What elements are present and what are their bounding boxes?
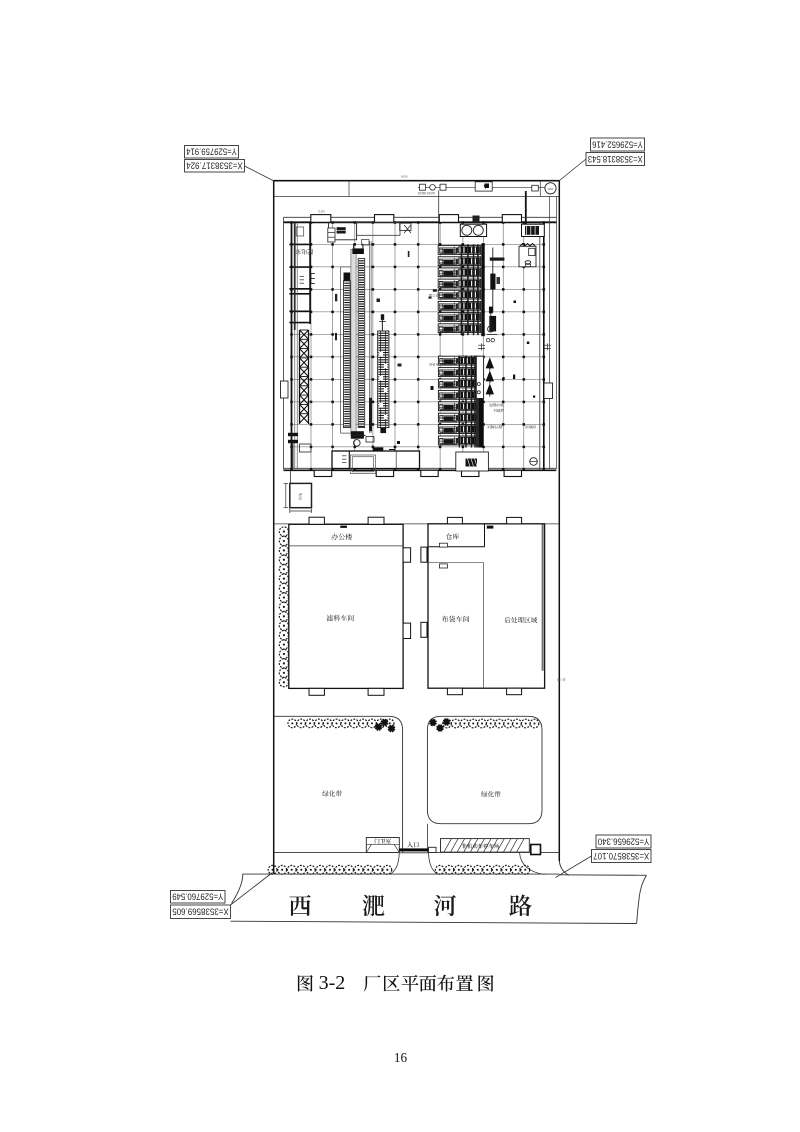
svg-text:X=3538317.924: X=3538317.924 bbox=[186, 161, 243, 171]
svg-text:Y=529656.340: Y=529656.340 bbox=[598, 836, 650, 846]
svg-text:Y=529759.914: Y=529759.914 bbox=[186, 147, 237, 157]
svg-text:X=3538318.543: X=3538318.543 bbox=[588, 154, 643, 164]
svg-text:DN50 DN70: DN50 DN70 bbox=[418, 192, 435, 196]
svg-text:16: 16 bbox=[394, 1050, 408, 1065]
svg-text:X=3538569.605: X=3538569.605 bbox=[172, 907, 229, 917]
svg-text:X=3538570.107: X=3538570.107 bbox=[593, 851, 649, 861]
svg-text:3.2m: 3.2m bbox=[318, 210, 325, 214]
svg-text:1#W: 1#W bbox=[547, 187, 553, 191]
svg-text:4#: 4# bbox=[557, 678, 561, 682]
svg-text:6000: 6000 bbox=[401, 175, 408, 179]
svg-text:Y=529760.549: Y=529760.549 bbox=[172, 892, 223, 902]
svg-text:Y=529652.416: Y=529652.416 bbox=[592, 139, 643, 149]
svg-text:3-2: 3-2 bbox=[319, 972, 346, 994]
